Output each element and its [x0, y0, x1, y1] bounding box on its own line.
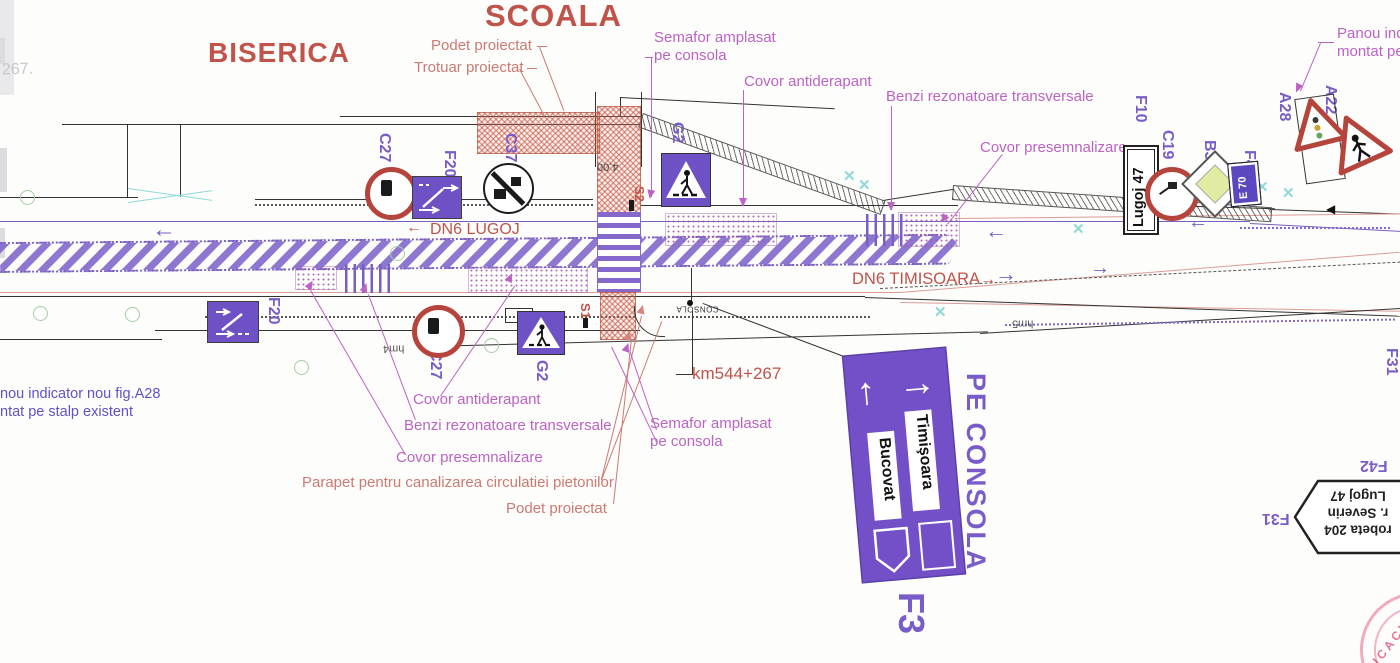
leader-arrowhead: [624, 330, 633, 340]
covor-presemnalizare-note: Covor presemnalizare: [396, 450, 543, 466]
km-marker-label: km544+267: [692, 365, 781, 383]
node-circle: [294, 360, 309, 375]
leader-arrowhead: [1292, 82, 1303, 94]
fence-line: [62, 124, 362, 125]
consola-post: [691, 268, 692, 304]
sign-c27-top-icon: [365, 167, 418, 220]
c37-symbol: [494, 189, 506, 199]
dn6-lugoj-arrow-icon: ←: [406, 220, 422, 237]
road-plan-canvas: 267. ✕ ✕: [0, 0, 1400, 663]
leader-line: [629, 350, 657, 430]
f31-line3: Lugoj 47: [1316, 487, 1400, 504]
dn6-timisoara-label: DN6 TIMISOARA: [852, 271, 980, 288]
panou-right-note-line1: Panou indic: [1337, 26, 1400, 42]
rumble-strips: [866, 214, 906, 246]
survey-x-mark: ✕: [934, 303, 947, 321]
arrow-up-icon: ↑: [855, 372, 877, 413]
podet-proiectat-note: Podet proiectat: [506, 501, 607, 517]
leader-arrowhead: [739, 198, 747, 207]
school-label: SCOALA: [485, 0, 622, 33]
rect-outline-icon: [918, 520, 956, 571]
sign-code-c37: C37: [501, 133, 518, 162]
f20-lane-diagram: [413, 177, 461, 218]
leader-line: [310, 290, 406, 455]
f31-line2: r. Severin: [1316, 504, 1400, 521]
marking-line: [0, 292, 900, 293]
covor-antiderapant-note: Covor antiderapant: [413, 392, 541, 408]
leader-line: [519, 69, 545, 116]
c27-symbol: [428, 318, 439, 334]
f20-lane-diagram: [208, 302, 258, 342]
destination-box-bucovat: Bucovat: [867, 431, 902, 521]
sign-code-c27-top: C27: [375, 133, 392, 162]
sign-code-f20-top: F20: [440, 150, 457, 178]
building-outline: [620, 97, 835, 109]
c37-symbol: [511, 177, 521, 186]
survey-mark: [128, 188, 212, 201]
f31-sign-text: robeta 204 r. Severin Lugoj 47: [1316, 487, 1400, 538]
pedestrian-crossing-zebra: [597, 212, 641, 292]
survey-x-mark: ✕: [858, 176, 871, 194]
semafor-note-line1: Semafor amplasat: [650, 416, 772, 432]
km-arrow-icon: ◀: [1326, 203, 1335, 216]
dimension-label: 4.00: [597, 160, 618, 172]
sign-c27-bottom-icon: [412, 305, 465, 358]
survey-x-mark: ✕: [1282, 184, 1295, 202]
sign-code-f31-right: F31: [1382, 348, 1399, 376]
sign-code-f3: F3: [892, 592, 930, 634]
pe-consola-label: PE CONSOLA: [962, 373, 990, 572]
sign-e70-panel: E 70: [1227, 161, 1262, 208]
semafor-note-line2: pe consola: [650, 434, 723, 450]
fence-line: [180, 124, 181, 197]
parapet-note: Parapet pentru canalizarea circulatiei p…: [302, 475, 614, 491]
sign-code-f10: F10: [1131, 95, 1148, 123]
dn6-timisoara-arrow-icon: →: [980, 272, 996, 289]
f31-line1: robeta 204: [1316, 521, 1400, 538]
km-leader-line: [676, 374, 693, 375]
leader-line: [651, 57, 652, 197]
node-circle: [20, 190, 35, 205]
survey-mark: [128, 190, 212, 203]
covor-antiderapant-note: Covor antiderapant: [744, 74, 872, 90]
lane-arrow-right-icon: →: [995, 262, 1017, 285]
c19-symbol: [1168, 182, 1177, 189]
survey-x-mark: ✕: [843, 167, 856, 185]
sign-g2-top-icon: [661, 153, 711, 207]
lane-arrow-left-icon: ←: [1188, 212, 1208, 233]
lane-arrow-left-icon: ←: [152, 217, 176, 242]
road-edge-line: [883, 189, 954, 201]
signal-s1-label: S1: [578, 303, 592, 319]
destination-bucovat: Bucovat: [875, 437, 897, 501]
traffic-signal-icon: [583, 318, 588, 328]
covor-presemnalizare-patch: [295, 266, 337, 290]
sidewalk-line: [0, 339, 162, 340]
survey-x-mark: ✕: [1072, 220, 1085, 238]
leader-line: [1300, 43, 1321, 91]
sign-code-c19: C19: [1158, 130, 1175, 159]
panou-left-note-line2: ntat pe stalp existent: [0, 405, 133, 420]
km-leader-line: [692, 311, 693, 374]
c27-symbol: [381, 180, 392, 196]
g2-crossing-pictogram: [661, 153, 711, 207]
leader-arrowhead: [646, 189, 655, 199]
panou-left-note-line1: nou indicator nou fig.A28: [0, 387, 160, 402]
panou-right-note-line2: montat pe s: [1337, 44, 1400, 60]
leader-arrowhead: [887, 202, 895, 211]
ghost-number: 267.: [2, 61, 34, 79]
e70-text: E 70: [1237, 176, 1250, 200]
sign-code-f42-bottom: F42: [1360, 456, 1388, 473]
rumble-strips: [345, 264, 393, 293]
sign-g2-bottom-icon: [517, 311, 565, 355]
f3-panel: ↑ → Timişoara Bucovat: [843, 348, 964, 582]
scan-artifact: [0, 148, 7, 192]
lane-arrow-right-icon: →: [1090, 258, 1110, 279]
sidewalk-line: [428, 331, 988, 347]
sign-f20-bottom-icon: [208, 302, 258, 342]
axis-dotted-line: [1240, 227, 1390, 229]
signal-s2-label: S2: [632, 186, 646, 202]
trotuar-proiectat-note: Trotuar proiectat: [414, 60, 524, 76]
consola-base-dot: [687, 300, 693, 306]
g2-crossing-pictogram: [517, 311, 565, 355]
lane-arrow-left-icon: ←: [985, 219, 1007, 242]
covor-antiderapant-patch: [468, 267, 588, 293]
arrow-right-icon: →: [896, 363, 937, 406]
traffic-signal-icon: [629, 200, 634, 211]
sign-code-f31-bottom: F31: [1262, 509, 1290, 526]
hm-marker: hm5: [1012, 317, 1033, 329]
road-edge-line: [0, 296, 865, 297]
leader-line: [743, 90, 744, 206]
destination-timisoara: Timişoara: [912, 414, 935, 490]
fence-line: [127, 124, 128, 197]
leader-line: [539, 47, 564, 111]
covor-antiderapant-patch: [665, 213, 777, 246]
scan-artifact: [0, 38, 5, 64]
crossing-approach-line: [641, 92, 642, 167]
semafor-note-line1: Semafor amplasat: [654, 30, 776, 46]
destination-box-timisoara: Timişoara: [904, 409, 940, 511]
dn6-lugoj-label: DN6 LUGOJ: [430, 222, 520, 239]
sign-c37-icon: [483, 163, 534, 214]
trotuar-proiectat-area: [477, 112, 600, 154]
pentagon-outline-icon: [872, 526, 912, 575]
leader-line: [891, 106, 892, 210]
sign-code-g2-top: G2: [668, 122, 685, 143]
benzi-rezonatoare-note: Benzi rezonatoare transversale: [886, 89, 1094, 105]
sign-f20-top-icon: [413, 177, 461, 218]
node-circle: [33, 306, 48, 321]
node-circle: [484, 338, 499, 353]
consola-label: CONSOLA: [676, 304, 719, 312]
node-circle: [390, 246, 405, 261]
benzi-rezonatoare-note: Benzi rezonatoare transversale: [404, 418, 612, 434]
node-circle: [125, 307, 140, 322]
podet-proiectat-note: Podet proiectat: [431, 38, 532, 54]
church-label: BISERICA: [208, 38, 350, 67]
semafor-note-line2: pe consola: [654, 48, 727, 64]
sign-code-f20-bottom: F20: [264, 297, 281, 325]
consola-leader-line: [703, 303, 863, 364]
leader-line: [527, 68, 537, 69]
sign-code-g2-bottom: G2: [532, 360, 549, 381]
